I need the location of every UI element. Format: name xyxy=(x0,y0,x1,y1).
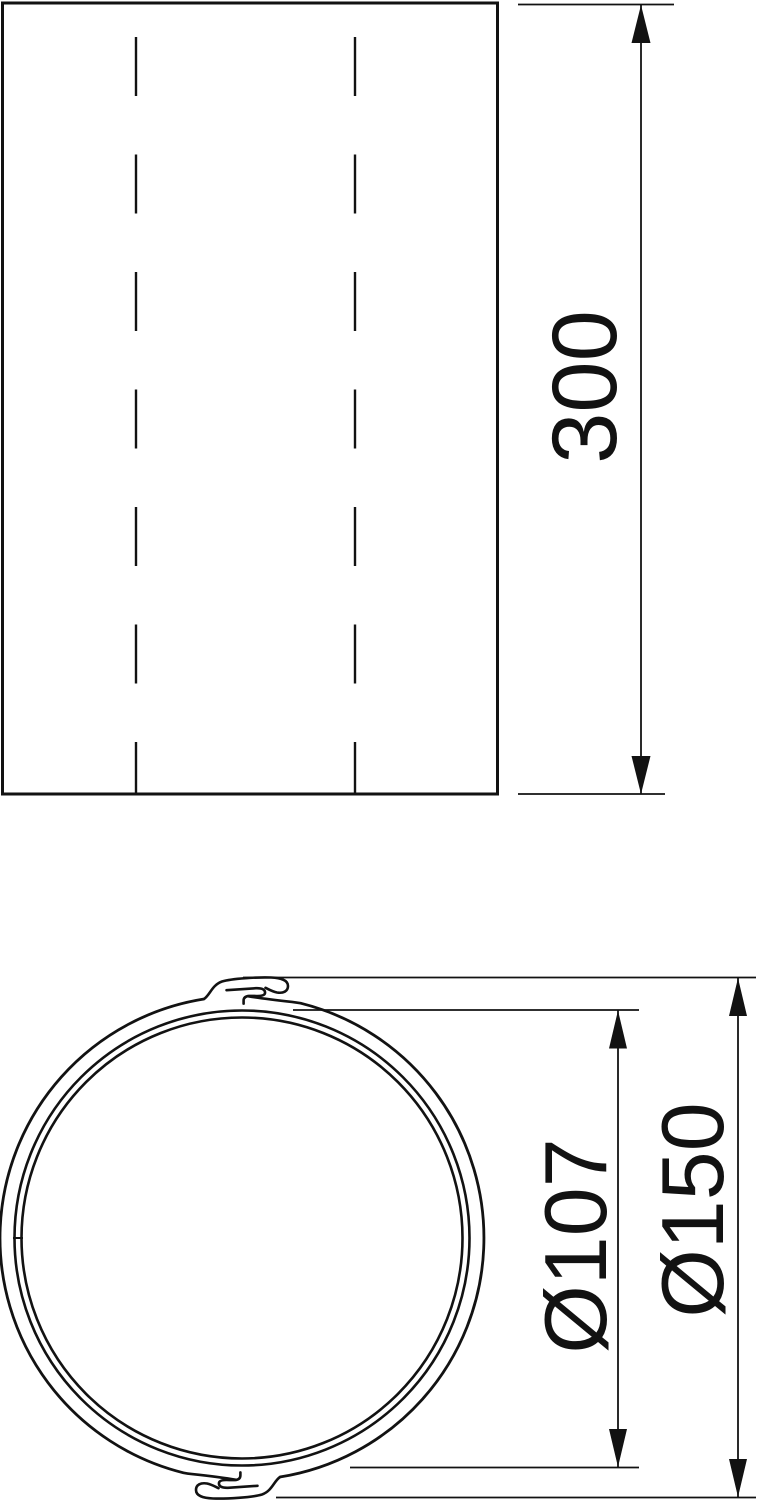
technical-drawing-page: 300 Ø1 xyxy=(0,0,757,1500)
length-arrow-down-icon xyxy=(632,756,651,794)
side-view-outline xyxy=(3,3,498,794)
inner-diameter-arrow-up-icon xyxy=(609,1011,627,1049)
outer-diameter-arrow-up-icon xyxy=(729,978,747,1016)
length-dimension-label: 300 xyxy=(534,310,636,464)
inner-diameter-arrow-down-icon xyxy=(609,1429,627,1467)
technical-drawing-canvas: 300 Ø1 xyxy=(0,0,757,1500)
outer-ring-arc-left xyxy=(0,999,204,1473)
inner-diameter-dimension: Ø107 xyxy=(293,1010,639,1468)
outer-diameter-label: Ø150 xyxy=(643,1102,742,1317)
outer-diameter-dimension: Ø150 xyxy=(243,978,756,1498)
front-view xyxy=(0,977,484,1498)
outer-diameter-arrow-down-icon xyxy=(729,1459,747,1497)
outer-ring-arc-right xyxy=(280,1003,484,1477)
seam-slot xyxy=(227,988,266,1003)
length-arrow-up-icon xyxy=(632,5,651,43)
side-view xyxy=(3,3,498,794)
inner-ring-inner-circle xyxy=(22,1018,463,1459)
seam-joint-bottom xyxy=(183,1472,280,1498)
length-dimension: 300 xyxy=(518,5,674,795)
inner-ring-outer-circle xyxy=(15,1011,470,1466)
seam-joint-top xyxy=(204,977,301,1003)
inner-diameter-label: Ø107 xyxy=(526,1138,625,1353)
